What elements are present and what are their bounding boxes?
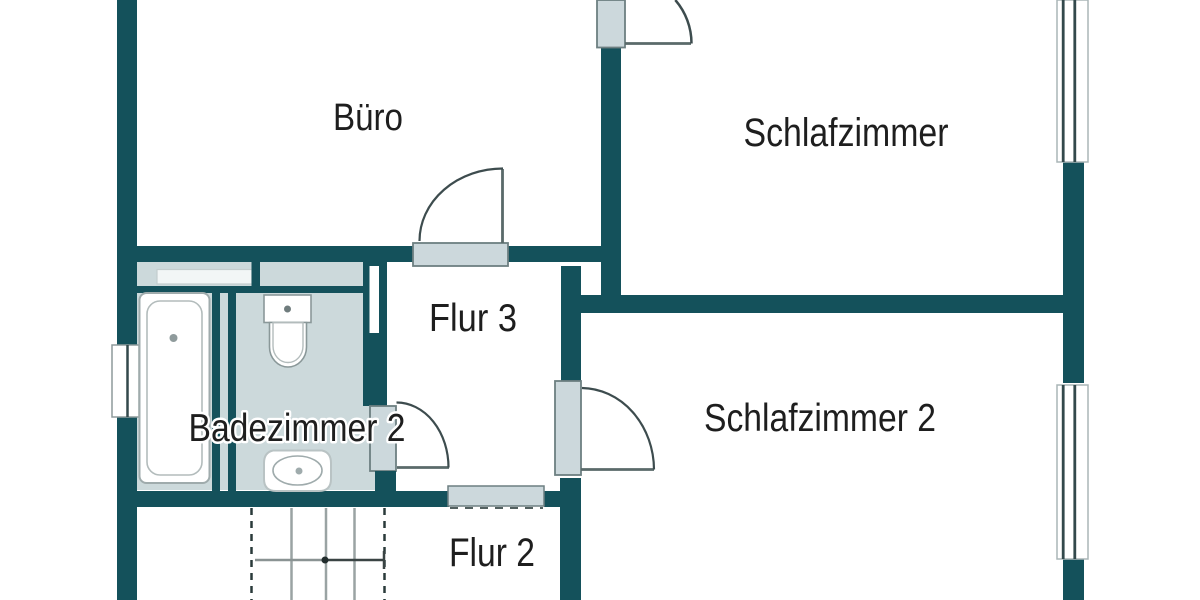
svg-text:Badezimmer 2: Badezimmer 2	[189, 407, 406, 450]
svg-text:Schlafzimmer 2: Schlafzimmer 2	[704, 397, 936, 440]
svg-text:Flur 3: Flur 3	[429, 297, 517, 340]
svg-text:Büro: Büro	[333, 97, 403, 139]
svg-text:Flur 2: Flur 2	[449, 531, 535, 575]
svg-text:Schlafzimmer: Schlafzimmer	[744, 111, 949, 155]
